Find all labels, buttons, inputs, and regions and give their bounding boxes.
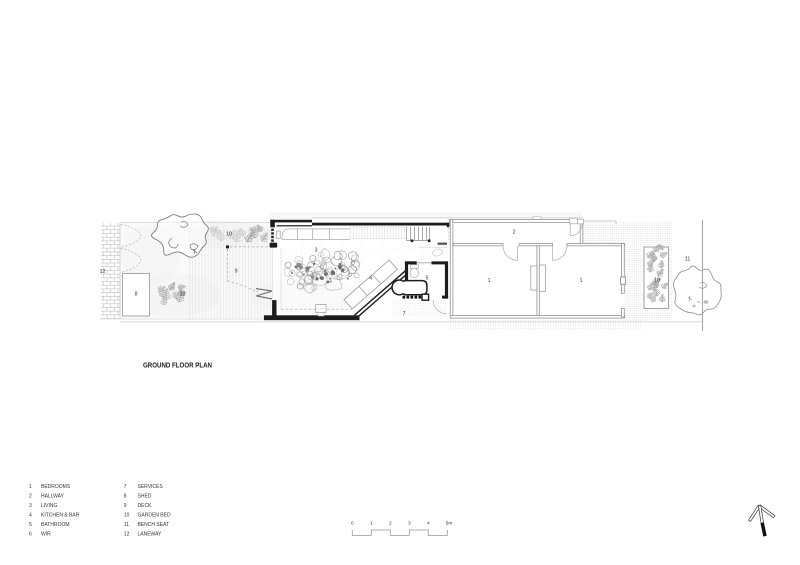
svg-text:1: 1 — [370, 521, 373, 527]
svg-text:HALLWAY: HALLWAY — [41, 493, 65, 499]
svg-text:3: 3 — [29, 503, 32, 509]
svg-text:8: 8 — [124, 493, 127, 499]
svg-text:WIR: WIR — [41, 531, 51, 537]
svg-text:BEDROOMS: BEDROOMS — [41, 484, 71, 490]
svg-text:10: 10 — [226, 232, 232, 238]
svg-text:7: 7 — [124, 484, 127, 490]
svg-text:7: 7 — [403, 311, 406, 317]
svg-text:4: 4 — [427, 521, 430, 527]
svg-text:0: 0 — [351, 521, 354, 527]
svg-text:1: 1 — [580, 278, 583, 284]
svg-text:9: 9 — [124, 503, 127, 509]
svg-text:9: 9 — [235, 269, 238, 275]
svg-text:5m: 5m — [446, 521, 453, 527]
svg-text:1: 1 — [29, 484, 32, 490]
svg-text:4: 4 — [29, 512, 32, 518]
svg-text:3: 3 — [408, 521, 411, 527]
svg-text:SERVICES: SERVICES — [138, 484, 164, 490]
svg-text:2: 2 — [389, 521, 392, 527]
svg-text:GARDEN BED: GARDEN BED — [138, 512, 171, 518]
svg-text:LIVING: LIVING — [41, 503, 58, 509]
svg-text:10: 10 — [180, 292, 186, 298]
svg-text:DECK: DECK — [138, 503, 153, 509]
svg-text:8: 8 — [135, 292, 138, 298]
svg-text:11: 11 — [685, 257, 690, 263]
svg-text:10: 10 — [654, 278, 660, 284]
svg-text:10: 10 — [124, 512, 130, 518]
svg-text:KITCHEN & BAR: KITCHEN & BAR — [41, 512, 80, 518]
svg-text:1: 1 — [488, 278, 491, 284]
svg-text:BENCH SEAT: BENCH SEAT — [138, 522, 170, 528]
svg-text:6: 6 — [29, 531, 32, 537]
svg-text:2: 2 — [513, 230, 516, 236]
svg-text:5: 5 — [426, 276, 429, 282]
svg-text:BATHROOM: BATHROOM — [41, 522, 70, 528]
svg-text:2: 2 — [29, 493, 32, 499]
svg-text:SHED: SHED — [138, 493, 152, 499]
svg-text:GROUND FLOOR PLAN: GROUND FLOOR PLAN — [143, 361, 212, 370]
svg-text:4: 4 — [369, 276, 372, 282]
svg-text:12: 12 — [100, 269, 106, 275]
svg-text:12: 12 — [124, 531, 130, 537]
svg-text:11: 11 — [124, 522, 129, 528]
svg-text:5: 5 — [29, 522, 32, 528]
svg-text:LANEWAY: LANEWAY — [138, 531, 163, 537]
svg-text:3: 3 — [315, 248, 318, 254]
